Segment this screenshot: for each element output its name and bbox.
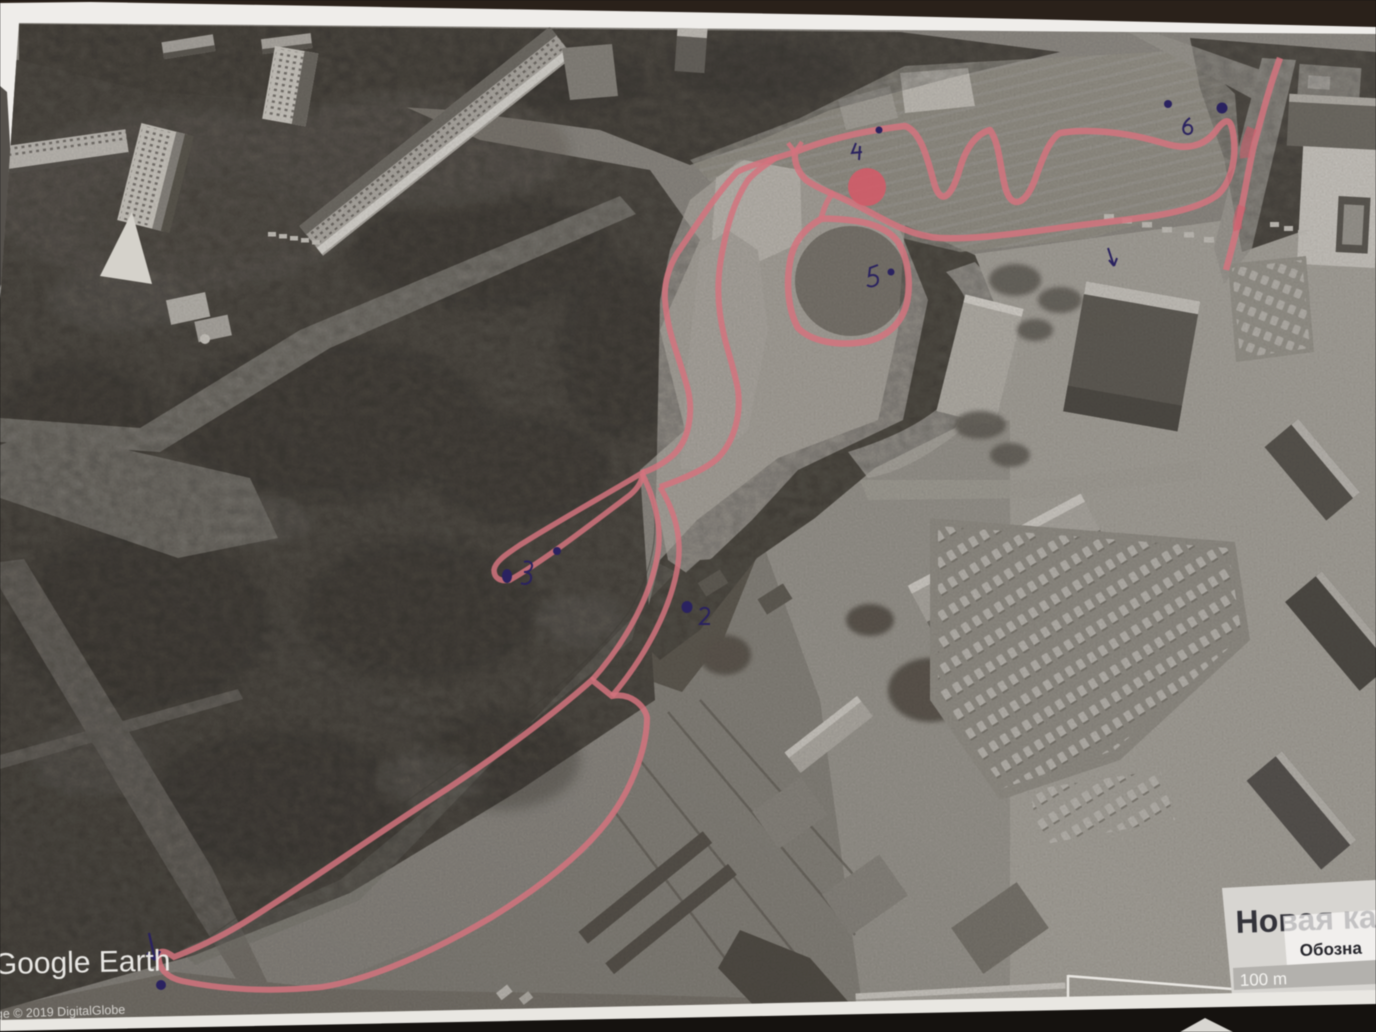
- svg-text:100 m: 100 m: [1239, 969, 1287, 990]
- svg-text:Обозна: Обозна: [1299, 939, 1362, 960]
- svg-text:Google Earth: Google Earth: [0, 944, 171, 981]
